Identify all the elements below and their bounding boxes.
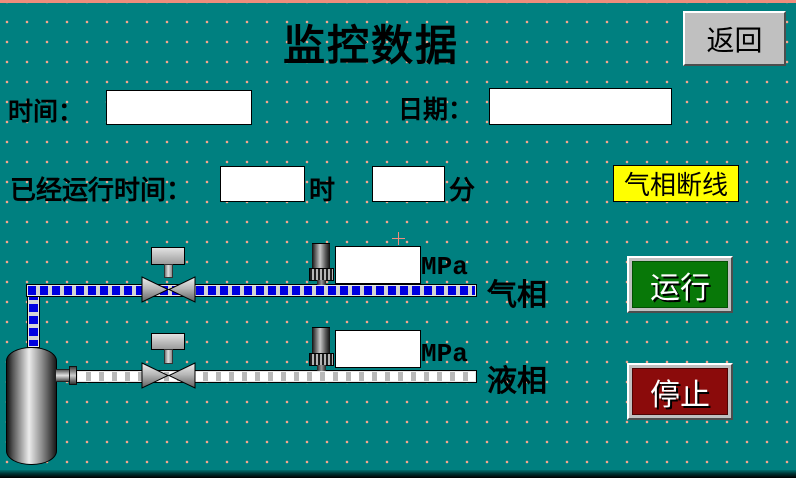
grid-cross-marker xyxy=(392,232,405,245)
time-display xyxy=(106,90,252,125)
runtime-hours-unit: 时 xyxy=(309,170,335,207)
back-button-label: 返回 xyxy=(688,16,781,61)
time-label: 时间： xyxy=(8,92,83,128)
gas-pressure-display xyxy=(335,246,421,284)
stop-button[interactable]: 停止 xyxy=(627,363,733,420)
liquid-valve-icon xyxy=(141,362,196,389)
gas-pipe-horizontal xyxy=(26,284,477,297)
gas-valve-actuator xyxy=(151,247,185,265)
page-title: 监控数据 xyxy=(283,12,459,73)
liquid-pressure-transmitter-icon xyxy=(312,327,330,354)
runtime-label: 已经运行时间： xyxy=(10,170,192,207)
gas-disconnect-alarm-text: 气相断线 xyxy=(624,165,728,202)
back-button[interactable]: 返回 xyxy=(683,11,786,66)
gas-valve-icon xyxy=(141,276,196,303)
run-button[interactable]: 运行 xyxy=(627,256,733,313)
stop-button-label: 停止 xyxy=(632,368,728,415)
top-accent-line xyxy=(0,0,796,3)
gas-pressure-transmitter-icon xyxy=(312,243,330,270)
liquid-valve-actuator xyxy=(151,333,185,350)
liquid-phase-label: 液相 xyxy=(487,356,547,400)
hmi-monitoring-screen: 监控数据 返回 时间： 日期： 已经运行时间： 时 分 气相断线 MPa 气相 … xyxy=(0,0,796,478)
gas-phase-label: 气相 xyxy=(487,270,547,314)
gas-disconnect-alarm-badge: 气相断线 xyxy=(613,165,739,202)
date-display xyxy=(489,88,672,125)
runtime-hours-display xyxy=(220,166,305,202)
runtime-minutes-display xyxy=(372,166,445,202)
run-button-label: 运行 xyxy=(632,261,728,308)
date-label: 日期： xyxy=(398,90,473,126)
bottom-shadow-strip xyxy=(0,470,796,478)
liquid-pressure-unit: MPa xyxy=(421,339,468,369)
gas-transmitter-stem xyxy=(317,280,326,285)
tank-icon xyxy=(6,347,57,465)
gas-pipe-vertical xyxy=(27,290,40,348)
liquid-pipe-horizontal xyxy=(76,370,477,383)
runtime-minutes-unit: 分 xyxy=(449,170,475,207)
gas-pressure-unit: MPa xyxy=(421,252,468,282)
liquid-transmitter-stem xyxy=(317,365,326,371)
liquid-pressure-display xyxy=(335,330,421,368)
